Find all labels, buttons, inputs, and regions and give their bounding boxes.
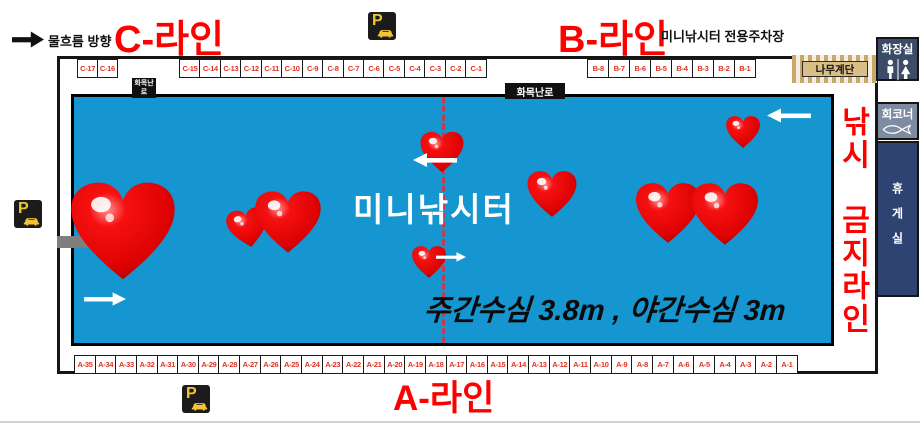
spot-cell: A-27 (239, 355, 261, 374)
wooden-stairs: 나무계단 (792, 55, 877, 83)
spot-cell: A-17 (446, 355, 468, 374)
spot-cell: C-7 (343, 59, 365, 78)
spot-cell: C-4 (404, 59, 426, 78)
spot-cell: C-14 (199, 59, 221, 78)
spot-cell: A-35 (74, 355, 96, 374)
b-line-label: B-라인 (558, 8, 668, 63)
spot-cell: C-1 (465, 59, 487, 78)
no-fishing-label-top: 낚시 (836, 106, 868, 172)
no-fishing-label-bottom: 금지라인 (836, 204, 868, 336)
heart-icon (526, 169, 578, 219)
spot-cell: C-5 (383, 59, 405, 78)
spot-cell: C-13 (220, 59, 242, 78)
parking-icon: P (182, 385, 210, 413)
spot-cell: A-11 (569, 355, 591, 374)
car-icon (23, 216, 40, 226)
spot-cell: A-30 (177, 355, 199, 374)
pond-title: 미니낚시터 (353, 183, 515, 231)
spot-cell: A-33 (115, 355, 137, 374)
c-line-spots-left: C-17C-16 (77, 59, 118, 78)
spot-cell: A-26 (260, 355, 282, 374)
spot-cell: C-17 (77, 59, 98, 78)
car-icon (191, 401, 208, 411)
spot-cell: A-18 (425, 355, 447, 374)
spot-cell: A-8 (631, 355, 653, 374)
spot-cell: A-25 (280, 355, 302, 374)
spot-cell: C-10 (281, 59, 303, 78)
spot-cell: A-16 (466, 355, 488, 374)
spot-cell: C-8 (322, 59, 344, 78)
spot-cell: A-4 (714, 355, 736, 374)
spot-cell: A-2 (755, 355, 777, 374)
heart-icon (690, 178, 760, 250)
heart-icon (252, 190, 324, 254)
spot-cell: B-6 (629, 59, 651, 78)
a-line-spots: A-35A-34A-33A-32A-31A-30A-29A-28A-27A-26… (74, 355, 798, 374)
direction-arrow-left-icon (767, 108, 811, 123)
spot-cell: B-4 (671, 59, 693, 78)
restroom-box: 화장실 (876, 37, 919, 81)
direction-arrow-left-icon (412, 153, 458, 167)
fish-icon (881, 122, 915, 137)
spot-cell: C-6 (363, 59, 385, 78)
spot-cell: B-8 (587, 59, 609, 78)
spot-cell: A-20 (384, 355, 406, 374)
direction-arrow-right-icon (84, 292, 126, 306)
spot-cell: B-5 (650, 59, 672, 78)
spot-cell: A-29 (198, 355, 220, 374)
spot-cell: A-28 (218, 355, 240, 374)
sashimi-corner-box: 회코너 (876, 102, 919, 140)
spot-cell: A-5 (693, 355, 715, 374)
parking-icon: P (368, 12, 396, 40)
heart-icon (725, 115, 761, 149)
spot-cell: C-16 (97, 59, 118, 78)
spot-cell: A-22 (342, 355, 364, 374)
direction-arrow-right-icon (436, 251, 466, 263)
spot-cell: B-2 (713, 59, 735, 78)
heart-icon (68, 180, 178, 282)
wood-stove-sign: 화목난로 (505, 83, 565, 99)
spot-cell: B-7 (608, 59, 630, 78)
spot-cell: A-15 (487, 355, 509, 374)
spot-cell: A-21 (363, 355, 385, 374)
rest-room-label: 휴게실 (889, 182, 906, 257)
restroom-label: 화장실 (878, 41, 917, 57)
spot-cell: A-3 (735, 355, 757, 374)
spot-cell: A-14 (507, 355, 529, 374)
spot-cell: A-31 (157, 355, 179, 374)
parking-lot-label: 미니낚시터 전용주차장 (661, 26, 784, 45)
spot-cell: C-11 (261, 59, 283, 78)
spot-cell: C-15 (179, 59, 201, 78)
c-line-label: C-라인 (114, 8, 224, 63)
spot-cell: A-24 (301, 355, 323, 374)
screen-edge-line (0, 421, 920, 423)
spot-cell: B-1 (734, 59, 756, 78)
rest-room-box: 휴게실 (876, 141, 919, 297)
parking-icon: P (14, 200, 42, 228)
spot-cell: C-12 (240, 59, 262, 78)
spot-cell: A-19 (404, 355, 426, 374)
spot-cell: A-6 (673, 355, 695, 374)
wooden-stairs-label: 나무계단 (802, 61, 868, 77)
c-line-spots-right: C-15C-14C-13C-12C-11C-10C-9C-8C-7C-6C-5C… (179, 59, 487, 78)
spot-cell: A-12 (549, 355, 571, 374)
flow-direction-arrow-icon (12, 31, 44, 48)
b-line-spots: B-8B-7B-6B-5B-4B-3B-2B-1 (587, 59, 756, 78)
spot-cell: C-9 (302, 59, 324, 78)
spot-cell: A-23 (322, 355, 344, 374)
spot-cell: A-34 (95, 355, 117, 374)
restroom-icon (881, 58, 915, 82)
wood-stove-sign-vertical: 화목난로 (132, 78, 156, 98)
spot-cell: A-10 (590, 355, 612, 374)
water-depth-note: 주간수심 3.8m , 야간수심 3m (423, 287, 788, 329)
spot-cell: A-7 (652, 355, 674, 374)
a-line-label: A-라인 (393, 370, 494, 421)
spot-cell: C-2 (445, 59, 467, 78)
fishing-site-map: 물흐름 방향 C-라인 B-라인 미니낚시터 전용주차장 A-라인 P P P (0, 0, 920, 427)
spot-cell: A-9 (611, 355, 633, 374)
spot-cell: A-32 (136, 355, 158, 374)
spot-cell: B-3 (692, 59, 714, 78)
spot-cell: A-1 (776, 355, 798, 374)
sashimi-corner-label: 회코너 (878, 106, 917, 122)
car-icon (377, 28, 394, 38)
spot-cell: A-13 (528, 355, 550, 374)
spot-cell: C-3 (424, 59, 446, 78)
flow-direction-label: 물흐름 방향 (48, 31, 111, 50)
